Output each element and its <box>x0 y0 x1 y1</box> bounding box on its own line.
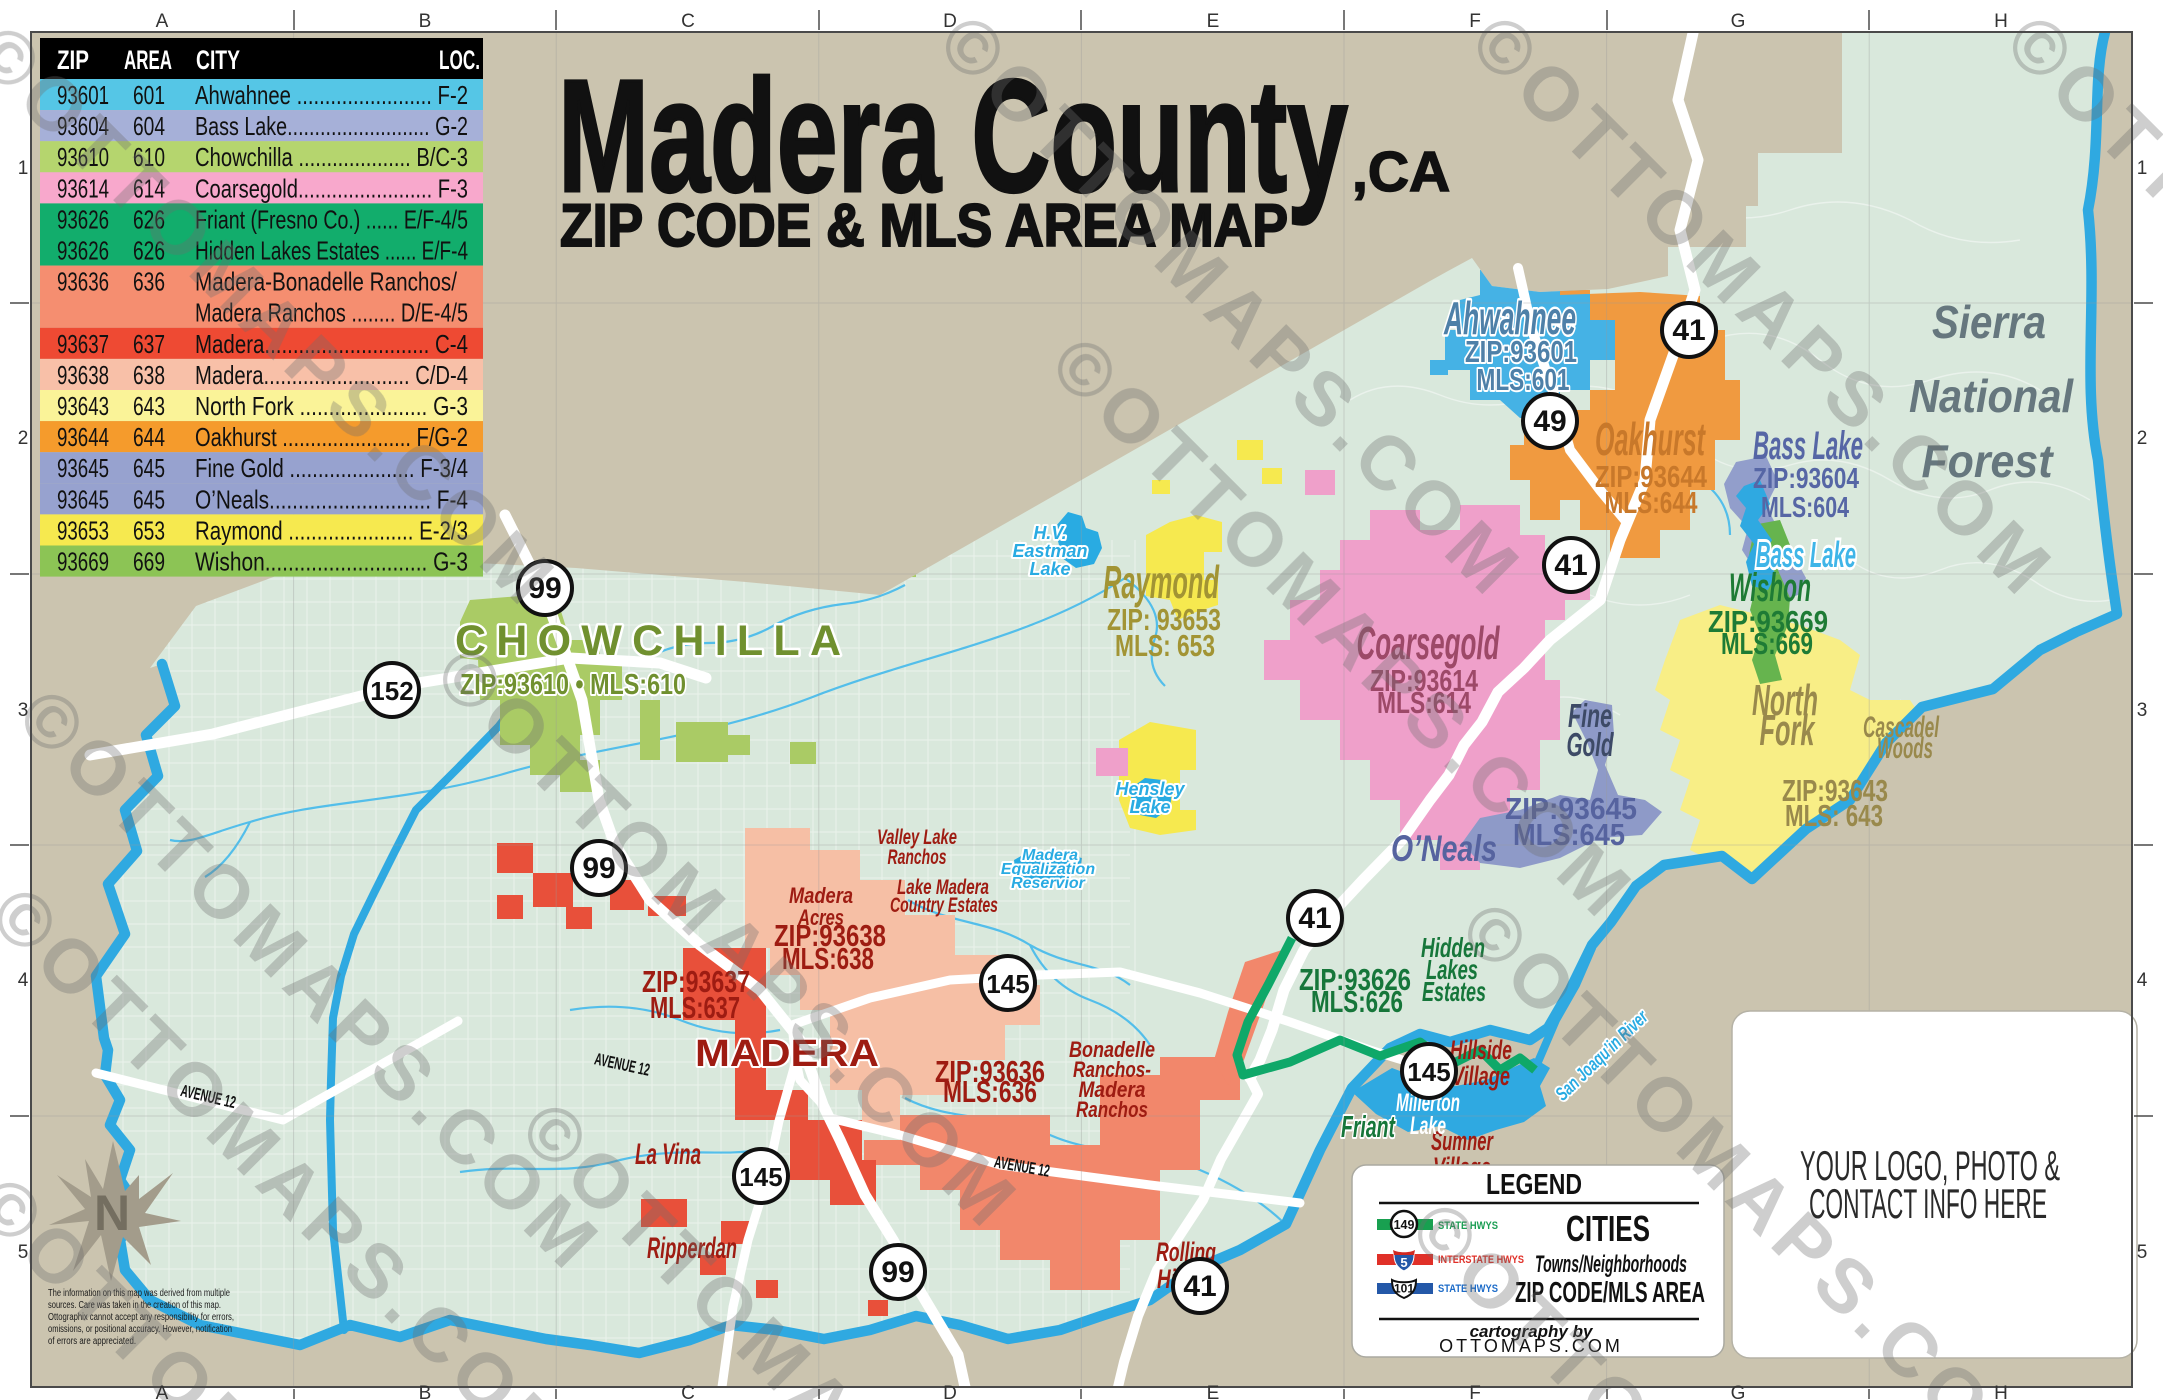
svg-text:3: 3 <box>2137 700 2148 721</box>
svg-text:G: G <box>1731 11 1746 32</box>
svg-text:2: 2 <box>18 428 29 449</box>
svg-text:145: 145 <box>1407 1057 1450 1087</box>
svg-text:Village: Village <box>1452 1061 1510 1091</box>
svg-text:O’Neals: O’Neals <box>1391 828 1497 869</box>
svg-text:93626: 93626 <box>57 236 109 266</box>
svg-text:E: E <box>1207 11 1220 32</box>
svg-text:645: 645 <box>133 453 165 483</box>
svg-text:MLS:636: MLS:636 <box>943 1074 1037 1109</box>
svg-text:93636: 93636 <box>57 267 109 297</box>
svg-text:A: A <box>156 1383 169 1400</box>
svg-text:Hensley: Hensley <box>1115 779 1185 799</box>
svg-text:C: C <box>681 11 695 32</box>
svg-text:MLS:626: MLS:626 <box>1311 984 1403 1019</box>
svg-text:4: 4 <box>2137 970 2148 991</box>
svg-text:Estates: Estates <box>1422 976 1486 1007</box>
svg-text:93653: 93653 <box>57 515 109 545</box>
svg-text:MLS:669: MLS:669 <box>1721 626 1813 661</box>
svg-text:MLS:644: MLS:644 <box>1605 485 1699 520</box>
svg-text:A: A <box>156 11 169 32</box>
svg-text:643: 643 <box>133 391 165 421</box>
svg-text:653: 653 <box>133 515 165 545</box>
svg-text:93638: 93638 <box>57 360 109 390</box>
svg-text:C: C <box>681 1383 695 1400</box>
svg-text:Sierra: Sierra <box>1932 296 2046 348</box>
svg-text:41: 41 <box>1298 902 1331 935</box>
svg-text:F: F <box>1469 1383 1481 1400</box>
svg-text:3: 3 <box>18 700 29 721</box>
svg-text:CITY: CITY <box>196 45 240 75</box>
svg-text:Reservior: Reservior <box>1011 875 1086 892</box>
svg-text:D: D <box>943 1383 957 1400</box>
svg-text:E: E <box>1207 1383 1220 1400</box>
svg-text:41: 41 <box>1183 1270 1216 1303</box>
svg-text:638: 638 <box>133 360 165 390</box>
svg-text:93643: 93643 <box>57 391 109 421</box>
svg-text:ZIP:93604: ZIP:93604 <box>1753 463 1859 495</box>
svg-text:Coarsegold....................: Coarsegold........................ F-3 <box>195 173 468 203</box>
svg-text:Chowchilla ...................: Chowchilla .................... B/C-3 <box>195 142 468 172</box>
svg-text:4: 4 <box>18 970 29 991</box>
svg-text:Oakhurst: Oakhurst <box>1595 413 1706 465</box>
svg-text:99: 99 <box>881 1256 914 1289</box>
svg-text:101: 101 <box>1394 1282 1414 1296</box>
svg-text:145: 145 <box>986 969 1029 999</box>
svg-text:Acres: Acres <box>797 905 844 930</box>
svg-text:MLS: 653: MLS: 653 <box>1115 628 1215 663</box>
svg-text:1: 1 <box>2137 158 2148 179</box>
svg-text:5: 5 <box>18 1242 29 1263</box>
svg-text:MLS: 643: MLS: 643 <box>1785 798 1883 833</box>
svg-text:Fork: Fork <box>1760 706 1816 755</box>
svg-text:B: B <box>419 11 432 32</box>
svg-text:637: 637 <box>133 329 165 359</box>
svg-text:Ranchos: Ranchos <box>888 846 947 869</box>
svg-text:Lake: Lake <box>1410 1112 1446 1140</box>
svg-text:H: H <box>1994 11 2008 32</box>
svg-text:National: National <box>1909 370 2074 422</box>
svg-text:41: 41 <box>1554 549 1587 582</box>
svg-text:B: B <box>419 1383 432 1400</box>
svg-text:93669: 93669 <box>57 547 109 577</box>
svg-text:G: G <box>1731 1383 1746 1400</box>
svg-text:H.V.: H.V. <box>1033 523 1066 543</box>
svg-text:Bass Lake.....................: Bass Lake.......................... G-2 <box>195 111 468 141</box>
svg-text:AREA: AREA <box>124 45 172 75</box>
svg-text:49: 49 <box>1533 405 1566 438</box>
svg-text:93645: 93645 <box>57 484 109 514</box>
svg-text:H: H <box>1994 1383 2008 1400</box>
svg-text:Eastman: Eastman <box>1012 541 1087 561</box>
svg-text:93644: 93644 <box>57 422 109 452</box>
svg-text:Country Estates: Country Estates <box>890 894 998 917</box>
svg-text:2: 2 <box>2137 428 2148 449</box>
svg-text:Ranchos: Ranchos <box>1076 1097 1148 1122</box>
svg-text:601: 601 <box>133 80 165 110</box>
svg-text:F: F <box>1469 11 1481 32</box>
svg-text:93645: 93645 <box>57 453 109 483</box>
svg-text:5: 5 <box>2137 1242 2148 1263</box>
svg-text:41: 41 <box>1672 314 1705 347</box>
svg-text:Towns/Neighborhoods: Towns/Neighborhoods <box>1535 1251 1687 1278</box>
svg-text:Woods: Woods <box>1877 732 1933 765</box>
svg-text:93637: 93637 <box>57 329 109 359</box>
svg-text:LEGEND: LEGEND <box>1486 1169 1582 1201</box>
svg-text:Gold: Gold <box>1567 726 1615 763</box>
svg-text:CITIES: CITIES <box>1566 1208 1650 1249</box>
svg-text:644: 644 <box>133 422 165 452</box>
svg-text:D: D <box>943 11 957 32</box>
svg-text:145: 145 <box>739 1162 782 1192</box>
svg-text:MLS:604: MLS:604 <box>1761 492 1849 524</box>
svg-text:,CA: ,CA <box>1352 140 1450 204</box>
svg-text:645: 645 <box>133 484 165 514</box>
svg-text:Friant: Friant <box>1341 1109 1396 1144</box>
svg-text:669: 669 <box>133 547 165 577</box>
svg-text:N: N <box>94 1185 130 1241</box>
svg-text:152: 152 <box>370 676 413 706</box>
svg-text:LOC.: LOC. <box>439 45 480 75</box>
svg-text:Lake: Lake <box>1029 559 1070 579</box>
svg-text:CHOWCHILLA: CHOWCHILLA <box>455 617 841 665</box>
svg-text:Wishon........................: Wishon............................ G-3 <box>195 547 468 577</box>
svg-text:Lake: Lake <box>1129 797 1170 817</box>
svg-text:Raymond: Raymond <box>1103 556 1219 608</box>
svg-text:1: 1 <box>18 158 29 179</box>
svg-text:MLS:601: MLS:601 <box>1477 362 1570 397</box>
svg-text:CONTACT INFO HERE: CONTACT INFO HERE <box>1809 1180 2047 1227</box>
svg-text:Ahwahnee .....................: Ahwahnee ........................ F-2 <box>195 80 468 110</box>
